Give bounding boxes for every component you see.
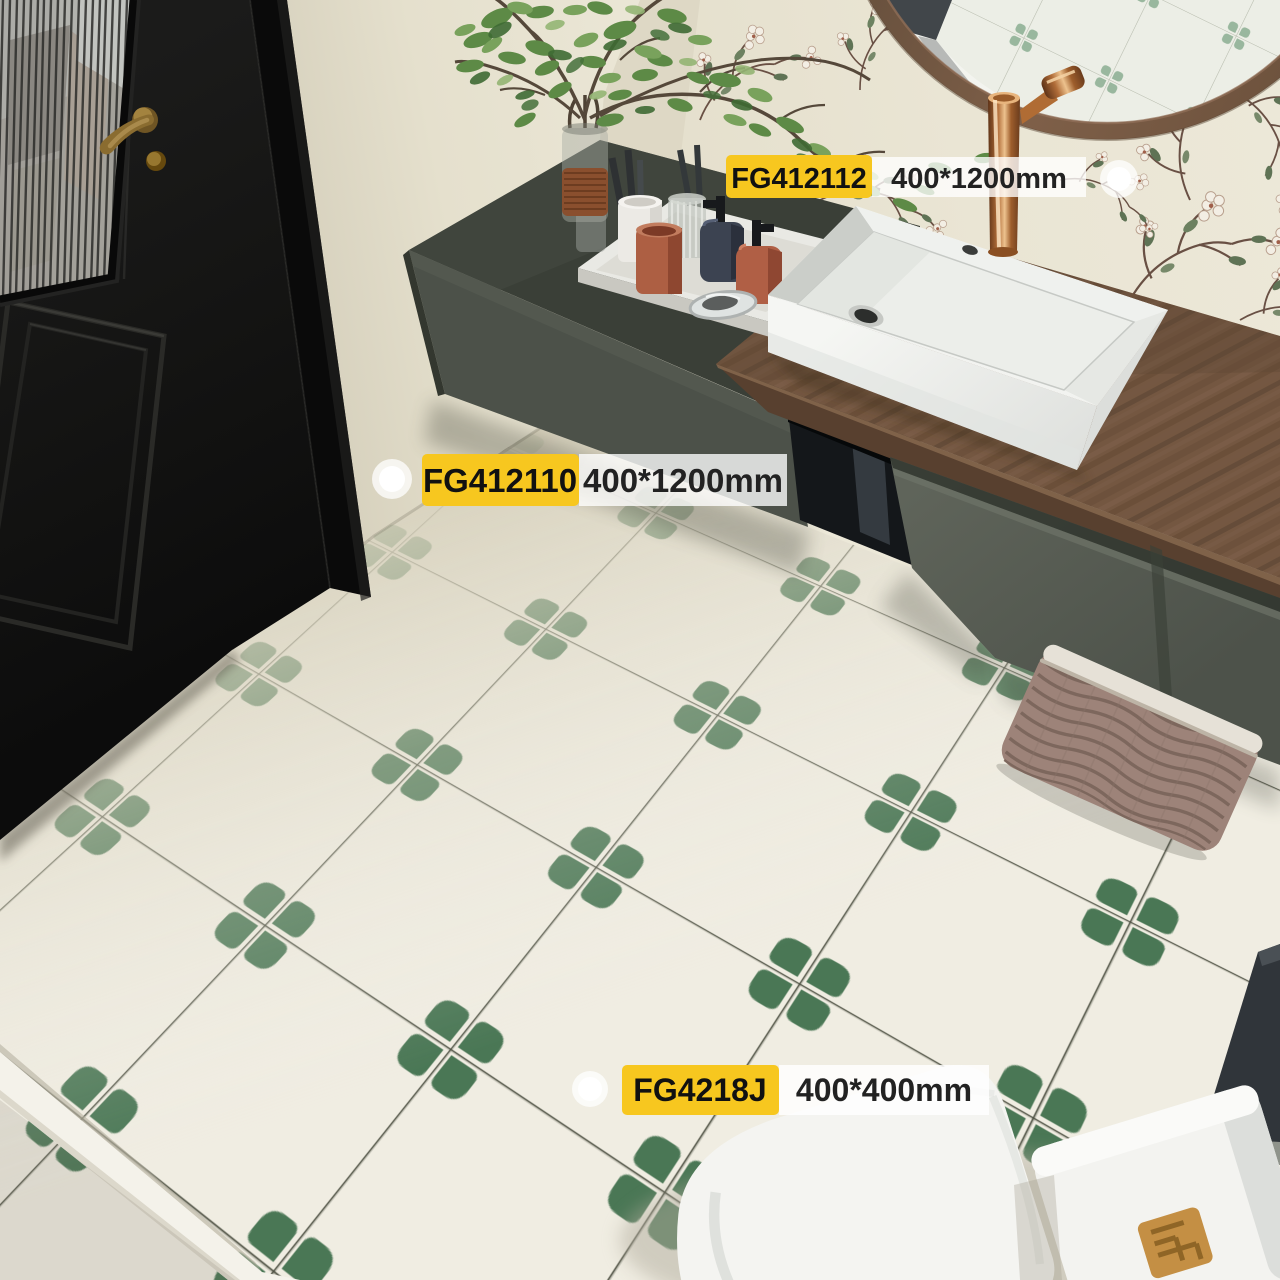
svg-text:FG412110: FG412110	[423, 462, 577, 499]
svg-text:400*1200mm: 400*1200mm	[891, 163, 1067, 195]
svg-text:FG412112: FG412112	[731, 163, 866, 195]
svg-text:FG4218J: FG4218J	[633, 1072, 766, 1108]
svg-text:400*1200mm: 400*1200mm	[583, 462, 783, 499]
svg-text:400*400mm: 400*400mm	[796, 1072, 972, 1108]
